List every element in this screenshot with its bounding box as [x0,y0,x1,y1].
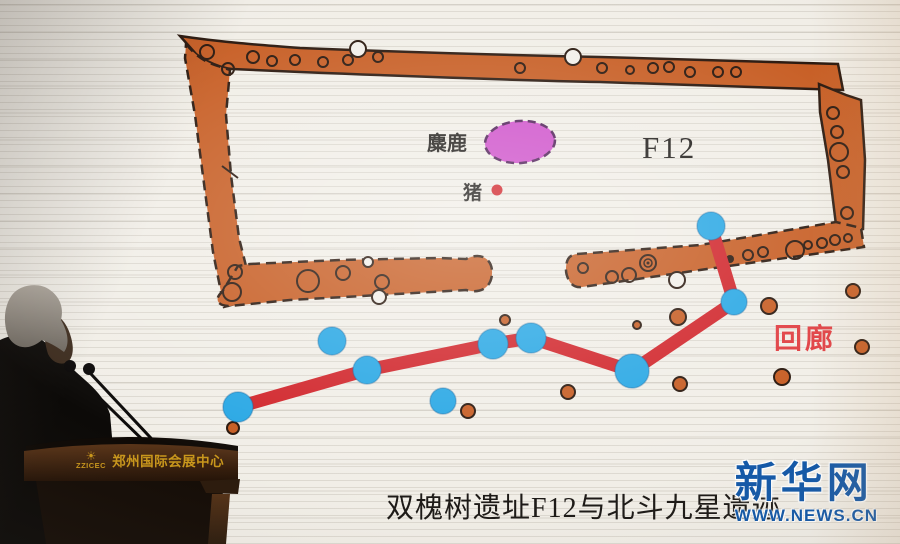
xinhuanet-watermark: 新华网 WWW.NEWS.CN [735,462,878,526]
xinhuanet-logo: 新华网 [735,462,878,504]
podium-plaque: ☀ ZZICEC 郑州国际会展中心 [76,446,218,474]
presenter-hair [5,285,68,352]
microphone-icon [83,363,95,375]
xinhuanet-url: WWW.NEWS.CN [735,506,878,526]
venue-logo: ☀ ZZICEC [76,450,106,470]
venue-name: 郑州国际会展中心 [112,450,224,470]
news-photo-of-presentation: 麋鹿 猪 F12 回廊 双槐树遗址F12与北斗九星遗迹 [0,0,900,544]
podium-side-step [200,479,240,494]
podium-body [36,481,224,544]
microphone-icon [64,360,76,372]
venue-abbreviation: ZZICEC [76,462,106,470]
